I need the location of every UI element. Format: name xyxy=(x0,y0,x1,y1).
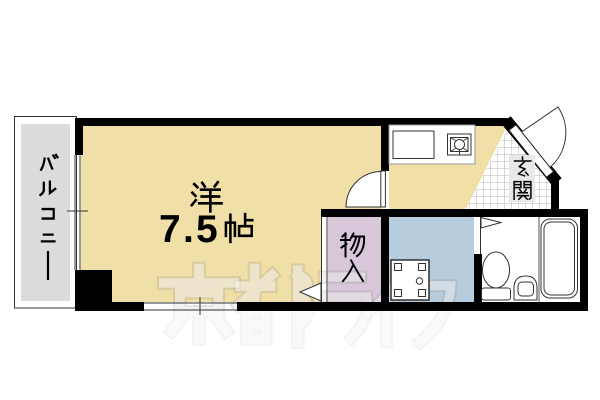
svg-text:7.5: 7.5 xyxy=(159,208,218,251)
